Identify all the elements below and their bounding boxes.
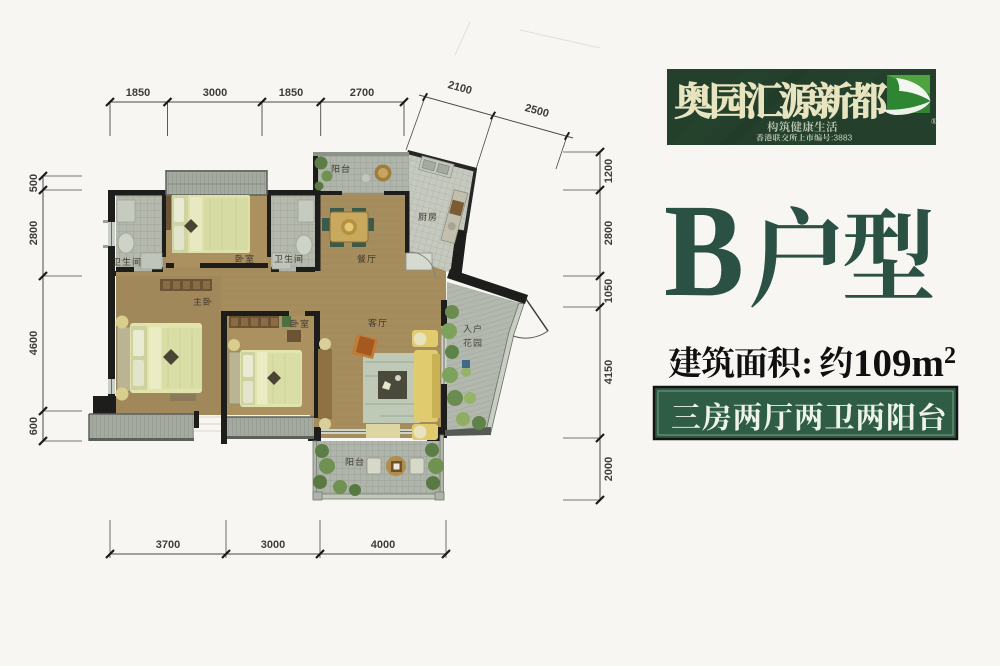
svg-text::3883: :3883	[831, 133, 853, 143]
svg-text:3000: 3000	[203, 87, 227, 99]
svg-text:2000: 2000	[603, 457, 615, 481]
svg-text:3700: 3700	[156, 539, 180, 551]
svg-text:1050: 1050	[603, 279, 615, 303]
svg-text:2800: 2800	[28, 221, 40, 245]
svg-text:4150: 4150	[603, 360, 615, 384]
svg-text:®: ®	[931, 117, 937, 126]
svg-text:500: 500	[28, 174, 40, 192]
svg-text:4600: 4600	[28, 331, 40, 355]
svg-text:4000: 4000	[371, 539, 395, 551]
svg-text:3000: 3000	[261, 539, 285, 551]
svg-text:109m2: 109m2	[853, 342, 956, 385]
svg-text:600: 600	[28, 417, 40, 435]
svg-text:2700: 2700	[350, 87, 374, 99]
svg-text:1850: 1850	[126, 87, 150, 99]
svg-text:1850: 1850	[279, 87, 303, 99]
svg-text:B: B	[664, 176, 744, 324]
svg-text:1200: 1200	[603, 159, 615, 183]
svg-text:2800: 2800	[603, 221, 615, 245]
